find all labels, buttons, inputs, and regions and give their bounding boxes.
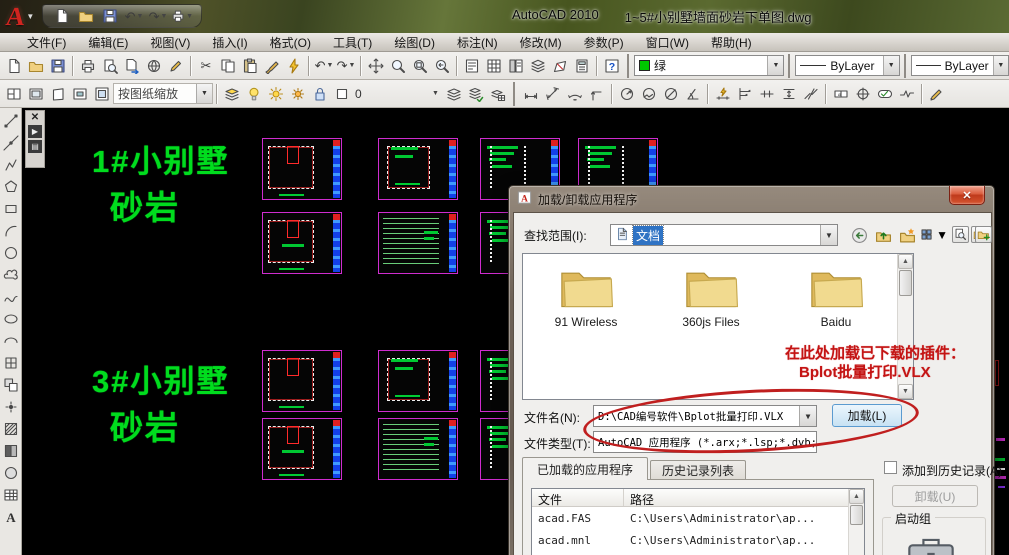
- tool-palettes-icon[interactable]: [505, 55, 527, 77]
- folder-name: 360js Files: [656, 315, 766, 329]
- layer-match-icon[interactable]: [465, 83, 487, 105]
- menu-item-10[interactable]: 参数(P): [573, 33, 635, 51]
- menu-item-1[interactable]: 文件(F): [16, 33, 77, 51]
- menu-item-9[interactable]: 修改(M): [509, 33, 573, 51]
- insert-block-icon[interactable]: [0, 352, 22, 374]
- load-unload-applications-dialog: A 加载/卸载应用程序 ✕ 查找范围(I): 文档 ▼ ▼: [508, 185, 995, 555]
- menu-item-11[interactable]: 窗口(W): [635, 33, 700, 51]
- toolbar-separator: [456, 56, 458, 76]
- quick-access-toolbar: ↶▼↷▼▼: [42, 4, 202, 28]
- drawing-thumbnail: [378, 418, 458, 480]
- folder-item[interactable]: 91 Wireless: [531, 264, 641, 329]
- dimension-space-icon[interactable]: [778, 83, 800, 105]
- look-in-label: 查找范围(I):: [524, 227, 587, 244]
- window-titlebar: A▼ ↶▼↷▼▼ AutoCAD 2010 1~5#小别墅墙面砂岩下单图.dwg: [0, 0, 1009, 33]
- layer-properties-icon[interactable]: [221, 83, 243, 105]
- toolbar-separator: [596, 56, 598, 76]
- linetype-sample: [800, 65, 826, 66]
- spline-icon[interactable]: [0, 286, 22, 308]
- open-file-icon[interactable]: [25, 55, 47, 77]
- viewport-scale-icon[interactable]: [69, 83, 91, 105]
- dimension-break-icon[interactable]: [800, 83, 822, 105]
- drawing-thumbnail: [262, 350, 342, 412]
- vertical-scrollbar[interactable]: ▲: [848, 489, 864, 555]
- arc-icon[interactable]: [0, 220, 22, 242]
- layer-vp-freeze-icon[interactable]: [287, 83, 309, 105]
- diameter-icon[interactable]: [660, 83, 682, 105]
- viewports-icon[interactable]: [3, 83, 25, 105]
- svg-text:?: ?: [609, 61, 615, 73]
- jogged-linear-icon[interactable]: [896, 83, 918, 105]
- autocad-logo-icon: A: [4, 2, 26, 32]
- qat-open-icon[interactable]: [75, 5, 97, 27]
- tolerance-icon[interactable]: ⌀: [830, 83, 852, 105]
- loaded-app-row[interactable]: acad.mnlC:\Users\Administrator\ap...: [532, 529, 864, 551]
- hatch-icon[interactable]: [0, 418, 22, 440]
- chevron-down-icon[interactable]: ▼: [993, 56, 1008, 75]
- palette-expand-icon[interactable]: ▶: [28, 125, 42, 138]
- menu-item-4[interactable]: 插入(I): [201, 33, 258, 51]
- chevron-down-icon[interactable]: ▼: [767, 56, 783, 75]
- scroll-up-icon[interactable]: ▲: [898, 254, 913, 269]
- scroll-down-icon[interactable]: ▼: [898, 384, 913, 399]
- tab-history-list[interactable]: 历史记录列表: [650, 460, 746, 480]
- chevron-down-icon[interactable]: ▼: [196, 84, 212, 103]
- menu-item-6[interactable]: 工具(T): [322, 33, 383, 51]
- linear-dimension-icon[interactable]: [520, 83, 542, 105]
- menu-item-12[interactable]: 帮助(H): [700, 33, 763, 51]
- circle-icon[interactable]: [0, 242, 22, 264]
- arc-length-icon[interactable]: [564, 83, 586, 105]
- menu-bar: 文件(F)编辑(E)视图(V)插入(I)格式(O)工具(T)绘图(D)标注(N)…: [0, 33, 1009, 52]
- dialog-titlebar[interactable]: A 加载/卸载应用程序: [509, 186, 994, 212]
- dialog-body: 查找范围(I): 文档 ▼ ▼ 91 Wireless360js FilesBa…: [513, 212, 992, 555]
- paste-icon[interactable]: [239, 55, 261, 77]
- toolbar-separator: [216, 84, 218, 104]
- drawing-thumbnail: [378, 138, 458, 200]
- cad-text-label-3: 3#小别墅 砂岩: [92, 356, 229, 449]
- startup-suite-group: 启动组: [882, 517, 986, 555]
- chevron-down-icon[interactable]: ▼: [799, 406, 816, 426]
- column-header[interactable]: 路径: [624, 489, 864, 506]
- layout-icon[interactable]: [91, 83, 113, 105]
- drawing-thumbnail: [262, 418, 342, 480]
- table-icon[interactable]: [0, 484, 22, 506]
- layer-color-swatch[interactable]: [331, 83, 353, 105]
- autocad-window: A▼ ↶▼↷▼▼ AutoCAD 2010 1~5#小别墅墙面砂岩下单图.dwg…: [0, 0, 1009, 555]
- standard-toolbar: ✂↶▼↷▼? 绿 ▼ ByLayer ▼ ByLayer ▼: [0, 52, 1009, 80]
- new-file-icon[interactable]: [3, 55, 25, 77]
- publish-icon[interactable]: [121, 55, 143, 77]
- linetype-value: ByLayer: [830, 59, 874, 73]
- loaded-applications-panel: 文件路径 acad.FASC:\Users\Administrator\ap..…: [522, 479, 874, 555]
- up-one-level-button[interactable]: [872, 224, 894, 246]
- help-icon[interactable]: ?: [601, 55, 623, 77]
- add-to-history-label: 添加到历史记录(A): [902, 462, 1002, 479]
- application-menu-button[interactable]: A▼: [2, 0, 38, 33]
- lineweight-sample: [916, 65, 941, 66]
- svg-text:A: A: [521, 194, 528, 204]
- scrollbar-thumb[interactable]: [850, 505, 863, 525]
- zoom-window-icon[interactable]: [409, 55, 431, 77]
- layer-translate-icon[interactable]: [487, 83, 509, 105]
- zoom-realtime-icon[interactable]: [387, 55, 409, 77]
- file-name-combobox[interactable]: D:\CAD编号软件\Bplot批量打印.VLX ▼: [593, 405, 817, 427]
- cad-text-label-1: 1#小别墅 砂岩: [92, 136, 229, 229]
- tab-loaded-applications[interactable]: 已加载的应用程序: [522, 457, 648, 480]
- chevron-down-icon[interactable]: ▼: [883, 56, 899, 75]
- color-swatch: [639, 60, 650, 71]
- quick-dimension-icon[interactable]: [712, 83, 734, 105]
- color-value: 绿: [654, 57, 666, 74]
- redo-icon[interactable]: ↷▼: [335, 55, 357, 77]
- baseline-icon[interactable]: [734, 83, 756, 105]
- folder-name: 91 Wireless: [531, 315, 641, 329]
- edit-icon[interactable]: [165, 55, 187, 77]
- ellipse-arc-icon[interactable]: [0, 330, 22, 352]
- markup-icon[interactable]: [549, 55, 571, 77]
- scroll-up-icon[interactable]: ▲: [849, 489, 864, 504]
- add-to-history-checkbox[interactable]: [884, 461, 897, 474]
- qat-plot-icon[interactable]: ▼: [171, 5, 193, 27]
- folder-item[interactable]: 360js Files: [656, 264, 766, 329]
- add-to-favorites-button[interactable]: [975, 226, 992, 243]
- dialog-title: 加载/卸载应用程序: [538, 191, 637, 208]
- toolbar-separator: [825, 84, 827, 104]
- palette-properties-icon[interactable]: ▤: [28, 140, 42, 153]
- menu-item-3[interactable]: 视图(V): [139, 33, 201, 51]
- briefcase-icon[interactable]: [905, 532, 957, 555]
- drawing-thumbnail: [262, 138, 342, 200]
- toolbar-grip[interactable]: [513, 82, 516, 106]
- clip-viewport-icon[interactable]: [47, 83, 69, 105]
- properties-icon[interactable]: [461, 55, 483, 77]
- document-title: 1~5#小别墅墙面砂岩下单图.dwg: [625, 7, 812, 26]
- layer-freeze-icon[interactable]: [265, 83, 287, 105]
- menu-item-2[interactable]: 编辑(E): [77, 33, 139, 51]
- viewports-layers-dim-toolbar: 按图纸缩放 ▼ 0 ▼ ⌀: [0, 80, 1009, 108]
- menu-item-5[interactable]: 格式(O): [259, 33, 322, 51]
- block-editor-icon[interactable]: [283, 55, 305, 77]
- revision-cloud-icon[interactable]: [0, 264, 22, 286]
- autocad-dialog-icon: A: [517, 190, 532, 208]
- toolbar-grip[interactable]: [627, 54, 630, 78]
- rectangle-icon[interactable]: [0, 198, 22, 220]
- menu-item-7[interactable]: 绘图(D): [383, 33, 446, 51]
- design-center-icon[interactable]: [483, 55, 505, 77]
- polyline-icon[interactable]: [0, 154, 22, 176]
- plot-preview-icon[interactable]: [99, 55, 121, 77]
- layer-on-off-icon[interactable]: [243, 83, 265, 105]
- viewport-scale-value: 按图纸缩放: [118, 85, 178, 102]
- toolbar-separator: [921, 84, 923, 104]
- new-folder-button[interactable]: [896, 224, 918, 246]
- jogged-icon[interactable]: [638, 83, 660, 105]
- pan-icon[interactable]: [365, 55, 387, 77]
- window-title: AutoCAD 2010 1~5#小别墅墙面砂岩下单图.dwg: [512, 7, 811, 26]
- toolbar-separator: [360, 56, 362, 76]
- linetype-control[interactable]: ByLayer ▼: [795, 55, 899, 76]
- viewport-scale-control[interactable]: 按图纸缩放 ▼: [113, 83, 213, 104]
- chevron-down-icon[interactable]: ▼: [820, 225, 837, 245]
- undo-icon[interactable]: ↶▼: [313, 55, 335, 77]
- layer-value: 0: [355, 87, 362, 101]
- file-name-label: 文件名(N):: [524, 409, 580, 426]
- copy-icon[interactable]: [217, 55, 239, 77]
- color-control[interactable]: 绿 ▼: [634, 55, 784, 76]
- lineweight-control[interactable]: ByLayer ▼: [911, 55, 1009, 76]
- unload-button[interactable]: 卸载(U): [892, 485, 978, 507]
- save-icon[interactable]: [47, 55, 69, 77]
- document-icon: [615, 227, 629, 244]
- gradient-icon[interactable]: [0, 440, 22, 462]
- close-button[interactable]: ✕: [949, 186, 985, 205]
- web-publish-icon[interactable]: [143, 55, 165, 77]
- red-annotation-text: 在此处加载已下载的插件： Bplot批量打印.VLX: [785, 344, 995, 382]
- drawing-thumbnail: [378, 350, 458, 412]
- svg-text:A: A: [6, 510, 16, 525]
- radius-icon[interactable]: [616, 83, 638, 105]
- qat-save-icon[interactable]: [99, 5, 121, 27]
- quickcalc-icon[interactable]: [571, 55, 593, 77]
- qat-undo-icon[interactable]: ↶▼: [123, 5, 145, 27]
- line-icon[interactable]: [0, 110, 22, 132]
- look-in-combobox[interactable]: 文档 ▼: [610, 224, 838, 246]
- docked-palette-strip: ✕ ▶ ▤: [25, 110, 45, 168]
- mtext-icon[interactable]: A: [0, 506, 22, 528]
- toolbar-separator: [72, 56, 74, 76]
- scrollbar-thumb[interactable]: [899, 270, 912, 296]
- drawing-thumbnail: [262, 212, 342, 274]
- layer-lock-icon[interactable]: [309, 83, 331, 105]
- search-files-button[interactable]: [952, 226, 969, 243]
- chevron-down-icon[interactable]: ▼: [428, 84, 443, 104]
- layer-states-icon[interactable]: [443, 83, 465, 105]
- back-button[interactable]: [848, 224, 870, 246]
- zoom-previous-icon[interactable]: [431, 55, 453, 77]
- polygon-icon[interactable]: [0, 176, 22, 198]
- file-name-value: D:\CAD编号软件\Bplot批量打印.VLX: [598, 409, 783, 424]
- file-type-combobox[interactable]: AutoCAD 应用程序 (*.arx;*.lsp;*.dvb; ▼: [593, 431, 817, 453]
- layer-control[interactable]: 0 ▼: [243, 83, 443, 105]
- folder-item[interactable]: Baidu: [781, 264, 891, 329]
- ellipse-icon[interactable]: [0, 308, 22, 330]
- region-icon[interactable]: [0, 462, 22, 484]
- folder-name: Baidu: [781, 315, 891, 329]
- qat-redo-icon[interactable]: ↷▼: [147, 5, 169, 27]
- toolbar-separator: [611, 84, 613, 104]
- inspect-icon[interactable]: [874, 83, 896, 105]
- toolbar-separator: [190, 56, 192, 76]
- make-block-icon[interactable]: [0, 374, 22, 396]
- loaded-app-row[interactable]: acad201...C:\program files\autocad ...: [532, 551, 864, 555]
- sheet-set-manager-icon[interactable]: [527, 55, 549, 77]
- cut-icon[interactable]: ✂: [195, 55, 217, 77]
- load-button[interactable]: 加载(L): [832, 404, 902, 427]
- toolbar-grip[interactable]: [788, 54, 791, 78]
- loaded-applications-list[interactable]: 文件路径 acad.FASC:\Users\Administrator\ap..…: [531, 488, 865, 555]
- app-title: AutoCAD 2010: [512, 7, 599, 26]
- toolbar-separator: [707, 84, 709, 104]
- match-properties-icon[interactable]: [261, 55, 283, 77]
- toolbar-separator: [308, 56, 310, 76]
- construction-line-icon[interactable]: [0, 132, 22, 154]
- lineweight-value: ByLayer: [945, 59, 989, 73]
- close-icon[interactable]: ✕: [31, 113, 39, 123]
- point-icon[interactable]: [0, 396, 22, 418]
- draw-toolbar: A: [0, 108, 22, 555]
- ordinate-icon[interactable]: [586, 83, 608, 105]
- look-in-value: 文档: [633, 226, 663, 245]
- angular-icon[interactable]: [682, 83, 704, 105]
- qat-new-icon[interactable]: [51, 5, 73, 27]
- loaded-app-row[interactable]: acad.FASC:\Users\Administrator\ap...: [532, 507, 864, 529]
- views-button[interactable]: ▼: [920, 224, 948, 246]
- menu-item-8[interactable]: 标注(N): [446, 33, 509, 51]
- named-views-icon[interactable]: [25, 83, 47, 105]
- svg-text:⌀: ⌀: [838, 92, 841, 98]
- aligned-dimension-icon[interactable]: [542, 83, 564, 105]
- chevron-down-icon: ▼: [26, 12, 34, 21]
- startup-suite-label: 启动组: [891, 510, 935, 527]
- center-mark-icon[interactable]: [852, 83, 874, 105]
- file-type-value: AutoCAD 应用程序 (*.arx;*.lsp;*.dvb;: [598, 435, 817, 450]
- file-type-label: 文件类型(T):: [524, 435, 591, 452]
- column-header[interactable]: 文件: [532, 489, 624, 506]
- drawing-thumbnail: [378, 212, 458, 274]
- list-header[interactable]: 文件路径: [532, 489, 864, 507]
- plot-icon[interactable]: [77, 55, 99, 77]
- dimension-edit-icon[interactable]: [926, 83, 948, 105]
- continue-icon[interactable]: [756, 83, 778, 105]
- close-icon: ✕: [962, 189, 971, 202]
- toolbar-grip[interactable]: [904, 54, 907, 78]
